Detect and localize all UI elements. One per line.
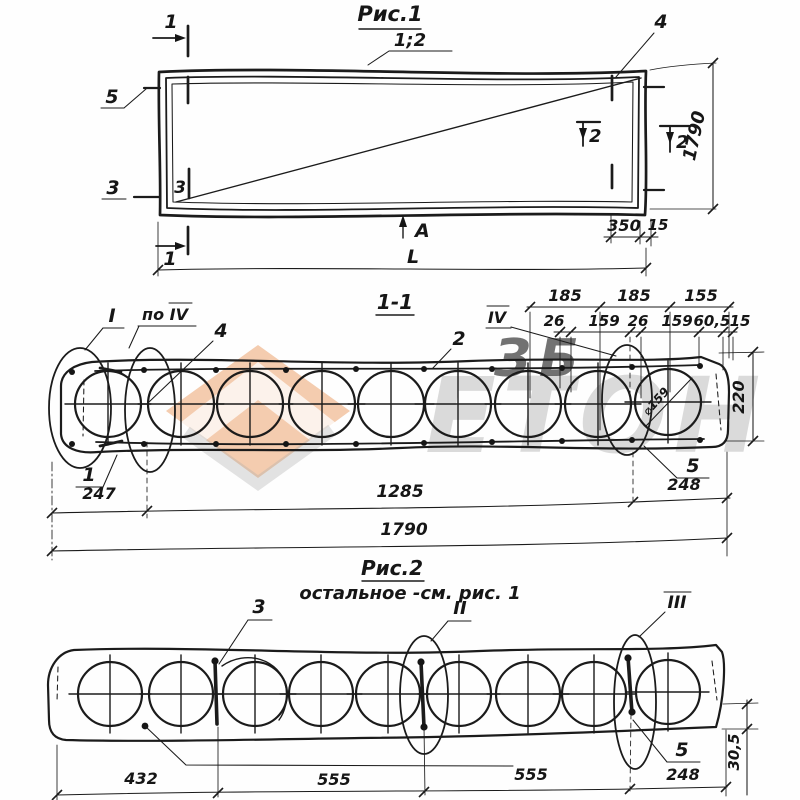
fig2-callout-III: III bbox=[639, 592, 691, 637]
section-3-label: 3 bbox=[174, 178, 186, 198]
section-2-label: 2 bbox=[589, 126, 602, 147]
fig2-callout-II: II bbox=[431, 598, 471, 641]
fig1-title: Рис.1 bbox=[357, 2, 422, 26]
fig1-panel-inner bbox=[172, 82, 633, 204]
fig1-panel-outer bbox=[159, 70, 646, 217]
detail-III-label: III bbox=[668, 593, 687, 613]
dim-248-label: 248 bbox=[667, 475, 700, 494]
pos-4-label: 4 bbox=[213, 320, 227, 342]
dim-159-label: 159 bbox=[661, 312, 692, 330]
view-A-label: A bbox=[413, 220, 430, 242]
fig2-anchor-leader bbox=[142, 723, 513, 766]
pos-5-label: 5 bbox=[105, 86, 118, 108]
pos-3-label: 3 bbox=[252, 596, 265, 618]
dim-555-label: 555 bbox=[317, 770, 350, 789]
detail-I-label: I bbox=[108, 305, 115, 327]
dim-1285-label: 1285 bbox=[376, 482, 423, 502]
dim-247-label: 247 bbox=[82, 484, 116, 503]
fig1-dim-350-15: 350 15 bbox=[604, 215, 668, 246]
fig2-cores bbox=[69, 653, 709, 733]
detail-ellipse-III bbox=[614, 635, 656, 769]
drawing-sheet: Рис.1 1;2 1 1 5 bbox=[0, 0, 800, 800]
section-callout-I: I bbox=[85, 305, 124, 350]
fig2-note: остальное -см. рис. 1 bbox=[299, 583, 520, 604]
fig2-view: Рис.2 остальное -см. рис. 1 bbox=[48, 556, 758, 800]
pos-1-label: 1 bbox=[82, 464, 95, 486]
fig2-title: Рис.2 bbox=[361, 556, 423, 580]
pos-2-label: 2 bbox=[452, 328, 465, 350]
dim-26-label: 26 bbox=[544, 312, 565, 330]
fig2-dim-30-5: 30,5 bbox=[722, 699, 758, 795]
fig1-section-mark-2-inner: 2 bbox=[577, 122, 602, 147]
detail-ellipse-I bbox=[49, 348, 111, 468]
dim-L-label: L bbox=[407, 246, 419, 268]
fig1-plan-view: Рис.1 1;2 1 1 5 bbox=[101, 2, 718, 276]
dim-432-label: 432 bbox=[123, 769, 157, 788]
detail-po-IV-label: по IV bbox=[142, 305, 190, 324]
dim-155-label: 155 bbox=[684, 286, 717, 305]
fig2-callout-3: 3 bbox=[219, 596, 272, 664]
pos-3-label: 3 bbox=[106, 177, 119, 199]
fig2-bar-II bbox=[400, 636, 448, 795]
fig1-callout-label: 1;2 bbox=[394, 30, 426, 51]
fig1-callout-4: 4 bbox=[616, 11, 668, 77]
section-title: 1-1 bbox=[377, 290, 413, 314]
fig2-right-groove bbox=[712, 661, 717, 700]
dim-60-5-label: 60,5 bbox=[693, 312, 730, 330]
section-1-label: 1 bbox=[163, 248, 176, 270]
dim-248-label: 248 bbox=[666, 765, 699, 784]
dim-220-label: 220 bbox=[729, 380, 748, 413]
dim-159-label: 159 bbox=[588, 312, 619, 330]
fig1-callout-5: 5 bbox=[101, 86, 160, 108]
dim-15-label: 15 bbox=[648, 216, 669, 234]
section-1-label: 1 bbox=[164, 11, 177, 33]
fig1-view-arrow-A: A bbox=[399, 215, 430, 242]
fig1-callout-3: 3 bbox=[102, 177, 159, 199]
fig1-diagonal-line bbox=[176, 78, 641, 202]
fig1-section-mark-3-inner: 3 bbox=[174, 169, 189, 198]
dim-15-label: 15 bbox=[730, 312, 751, 330]
dim-555-label: 555 bbox=[514, 765, 547, 784]
fig2-left-groove bbox=[57, 667, 58, 702]
fig2-callout-5: 5 bbox=[633, 720, 700, 762]
fig1-section-mark-1-bottom: 1 bbox=[156, 227, 188, 270]
dim-1790-label: 1790 bbox=[679, 109, 710, 162]
technical-drawing: Рис.1 1;2 1 1 5 bbox=[0, 0, 800, 800]
watermark: ЕТОН ЗБ bbox=[166, 329, 766, 483]
pos-5-label: 5 bbox=[686, 455, 699, 477]
detail-IV-label: IV bbox=[488, 308, 508, 327]
dim-350-label: 350 bbox=[607, 216, 640, 235]
section-callout-po-IV: по IV bbox=[129, 303, 196, 348]
pos-5-label: 5 bbox=[675, 739, 688, 761]
pos-4-label: 4 bbox=[653, 11, 667, 33]
dim-26-label: 26 bbox=[628, 312, 649, 330]
dim-30-5-label: 30,5 bbox=[725, 733, 743, 770]
dim-185-label: 185 bbox=[548, 286, 581, 305]
fig1-dim-length: L bbox=[153, 222, 651, 276]
watermark-big-text: ЕТОН bbox=[425, 355, 766, 477]
detail-II-label: II bbox=[453, 598, 467, 619]
dim-1790-label: 1790 bbox=[380, 520, 427, 540]
fig1-panel-mid bbox=[166, 77, 639, 210]
dim-185-label: 185 bbox=[617, 286, 650, 305]
fig1-callout-leader bbox=[368, 51, 452, 65]
